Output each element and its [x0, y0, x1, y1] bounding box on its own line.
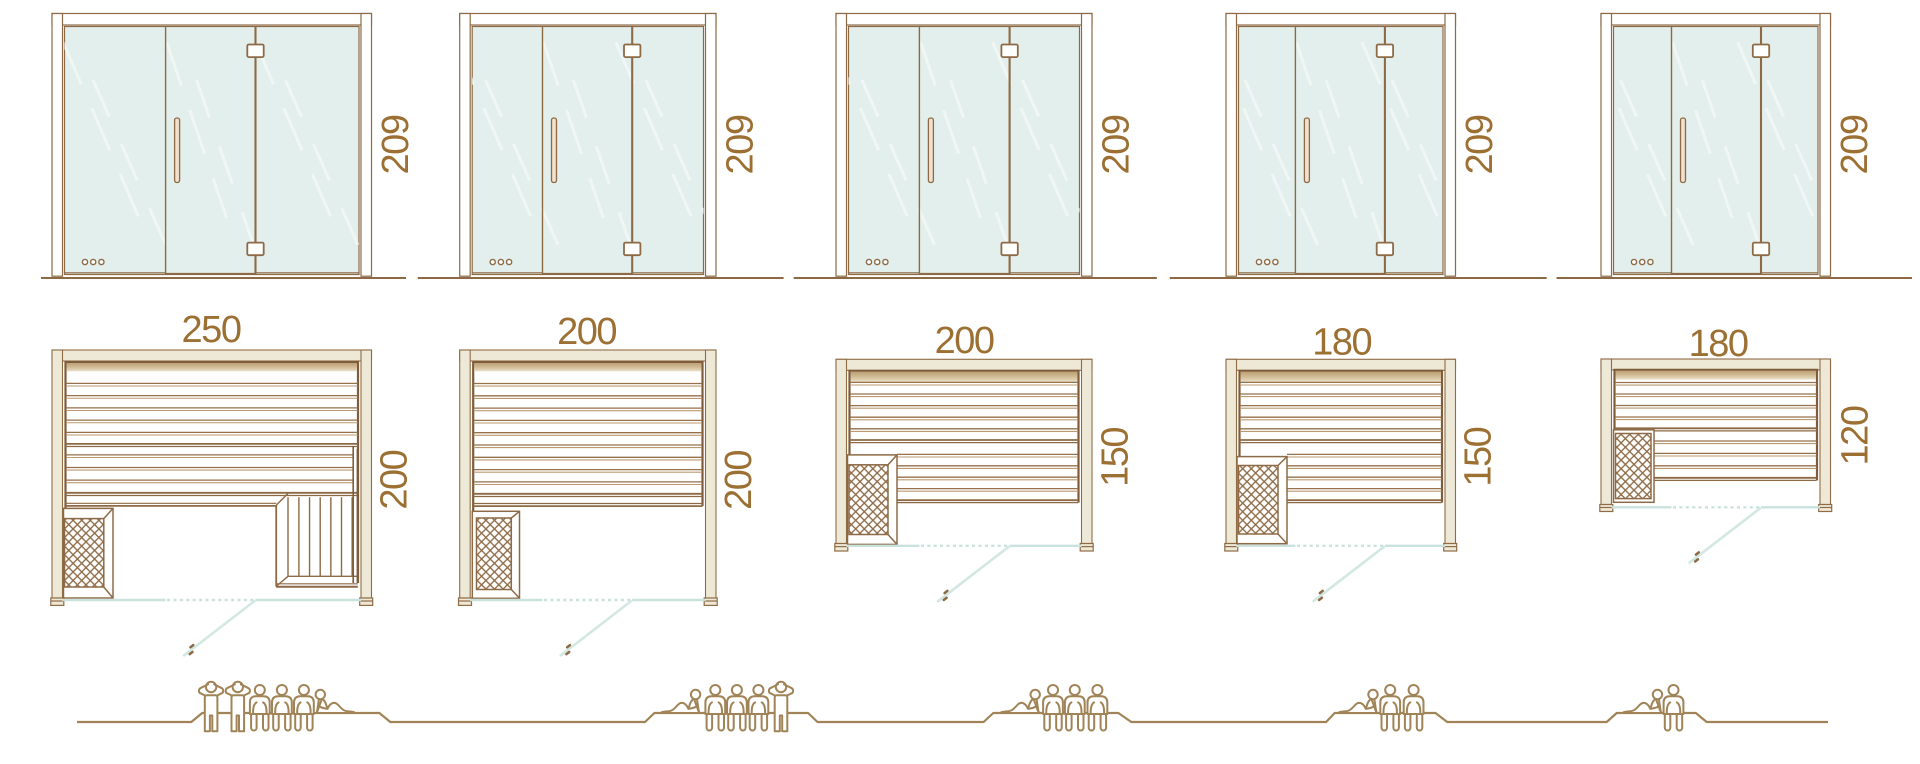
svg-text:200: 200: [374, 450, 416, 509]
svg-text:150: 150: [1458, 427, 1500, 486]
svg-text:250: 250: [182, 309, 241, 351]
svg-text:150: 150: [1094, 428, 1136, 487]
svg-text:200: 200: [935, 320, 994, 362]
svg-text:180: 180: [1312, 321, 1371, 363]
svg-text:209: 209: [375, 115, 417, 174]
svg-text:209: 209: [1834, 115, 1876, 174]
svg-text:209: 209: [1459, 115, 1501, 174]
svg-text:200: 200: [718, 451, 760, 510]
svg-text:120: 120: [1835, 406, 1877, 465]
svg-text:200: 200: [557, 311, 616, 353]
svg-text:209: 209: [720, 115, 762, 174]
svg-text:209: 209: [1096, 115, 1138, 174]
